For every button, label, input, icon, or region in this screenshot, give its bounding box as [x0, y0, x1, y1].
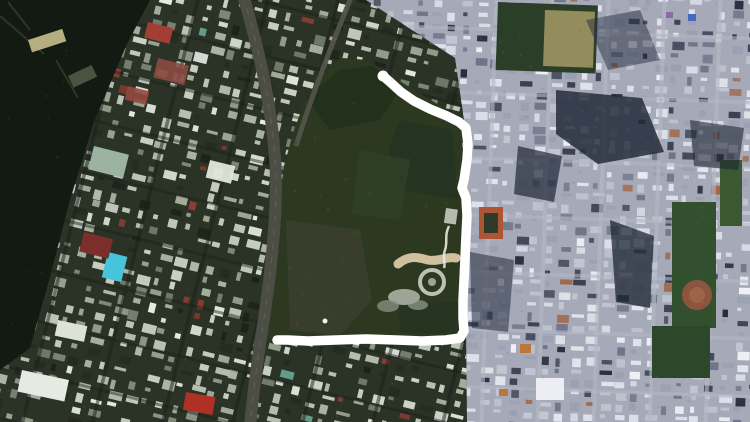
map-feature [720, 160, 742, 226]
tree-shadow-mass [690, 120, 744, 170]
tree-shadow-mass [470, 252, 514, 332]
screenshot-root [0, 0, 750, 422]
map-feature [536, 378, 564, 400]
map-feature [543, 10, 595, 68]
map-feature [520, 344, 531, 353]
map-feature [652, 326, 710, 378]
satellite-map-image [0, 0, 750, 422]
route-annotation-start-cap [378, 71, 389, 82]
map-feature [666, 12, 673, 18]
tree-shadow-mass [514, 146, 562, 202]
map-feature [499, 389, 508, 396]
map-feature [688, 14, 696, 21]
map-feature [484, 213, 498, 233]
